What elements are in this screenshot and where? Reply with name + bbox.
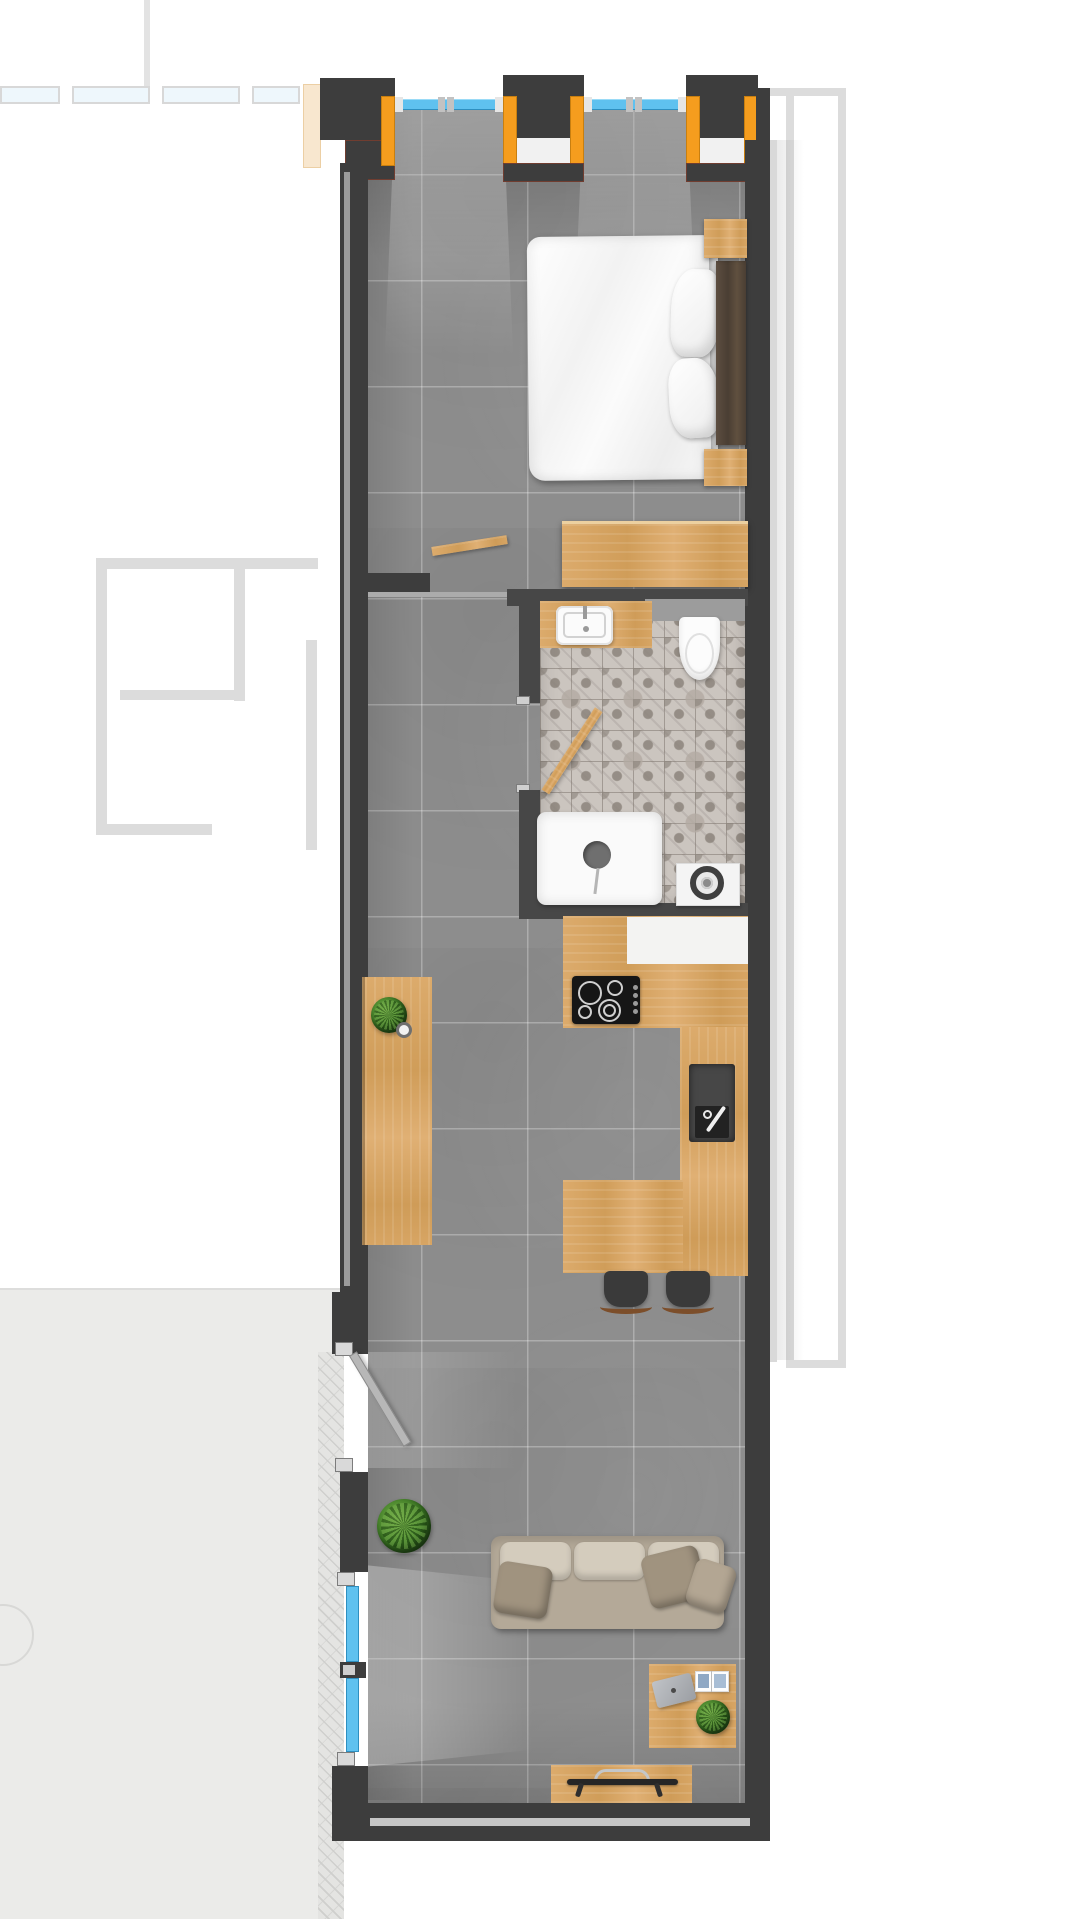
neighbor-wall-line [306,640,317,850]
sofa-throw-pillow [492,1560,553,1620]
window-mullion [438,97,445,112]
bar-stool-footrest [662,1300,714,1314]
terrace-window-glass [346,1678,359,1752]
breakfast-peninsula [563,1180,683,1273]
basin-drain [583,626,589,632]
facade-pier-sill [700,138,744,164]
plant-foliage [381,1503,426,1548]
plant-foliage [699,1703,728,1732]
cooktop-burner [578,981,602,1005]
terrace [0,1288,344,1919]
headboard [716,261,746,445]
window-frame-orange [503,96,517,168]
divider-wall-stub [368,573,430,592]
facade-pier-base [503,163,584,182]
neighbor-wall-line [838,96,846,1368]
neighbor-wall-line [96,569,107,835]
neighbor-wall-line [96,558,318,569]
cooktop-burner [607,980,623,996]
window-frame-orange [686,96,700,168]
kitchen-faucet-base [703,1110,712,1119]
neighbor-wall-line [96,824,212,835]
window-end-cap [395,97,403,112]
window-mullion [626,97,633,112]
right-wall-outer-line [770,140,777,1362]
bathroom-door-frame [516,696,530,705]
bedroom-dresser [562,521,748,587]
cooktop-knob [633,993,638,998]
neighbor-window-band [0,86,60,104]
nightstand-upper [704,219,747,258]
left-wall [340,1472,368,1572]
toilet-seat-line [685,633,714,674]
floor-plan-canvas [0,0,1070,1919]
candle [396,1022,412,1038]
entry-door-frame [335,1458,353,1472]
washing-machine-door-hub [701,877,713,889]
magazine-spine [711,1671,712,1692]
terrace-window-mullion-cap [343,1665,355,1675]
neighbor-wall-line [120,690,240,700]
neighbor-wall-line [786,96,794,1368]
neighbor-window-band [252,86,300,104]
cooktop-burner [578,1005,592,1019]
pillow [669,268,721,358]
neighbor-window-band [72,86,150,104]
window-mullion [635,97,642,112]
terrace-window-frame [337,1752,355,1766]
divider-floor-track [368,592,508,597]
floor-plant [377,1499,431,1553]
window-frame-orange [570,96,584,168]
window-frame-orange [381,96,395,166]
cooktop-knob [633,1009,638,1014]
neighbor-wall-line [234,569,245,701]
window-mullion [447,97,454,112]
desk-plant [696,1700,730,1734]
neighbor-wall-line [770,88,846,96]
left-wall-inner-line [344,172,350,1286]
cooktop-knob [633,985,638,990]
bathroom-left-wall [519,589,540,703]
bar-stool-footrest [600,1300,652,1314]
terrace-window-frame [337,1572,355,1586]
cooktop-burner-inner [603,1004,616,1017]
neighbor-wall-line [144,0,150,86]
magazine-image [714,1674,726,1688]
facade-pier-sill [517,138,570,164]
left-wall [332,1766,368,1808]
window-end-cap [495,97,503,112]
magazine-image [698,1674,709,1688]
window-end-cap [584,97,592,112]
neighbor-wall-line [786,1360,846,1368]
neighbor-cream-pier [303,84,321,168]
neighbor-window-band [162,86,240,104]
basin-faucet [583,606,587,619]
kitchen-white-worktop [627,917,748,964]
right-wall [745,140,770,1806]
nightstand-lower [704,449,747,486]
window-end-cap [678,97,686,112]
sofa-back-cushion [574,1542,645,1580]
shower-drain [583,841,611,869]
laptop-logo [671,1688,676,1693]
terrace-window-glass [346,1586,359,1662]
bottom-wall-inner-line [370,1818,750,1826]
cooktop-knob [633,1001,638,1006]
